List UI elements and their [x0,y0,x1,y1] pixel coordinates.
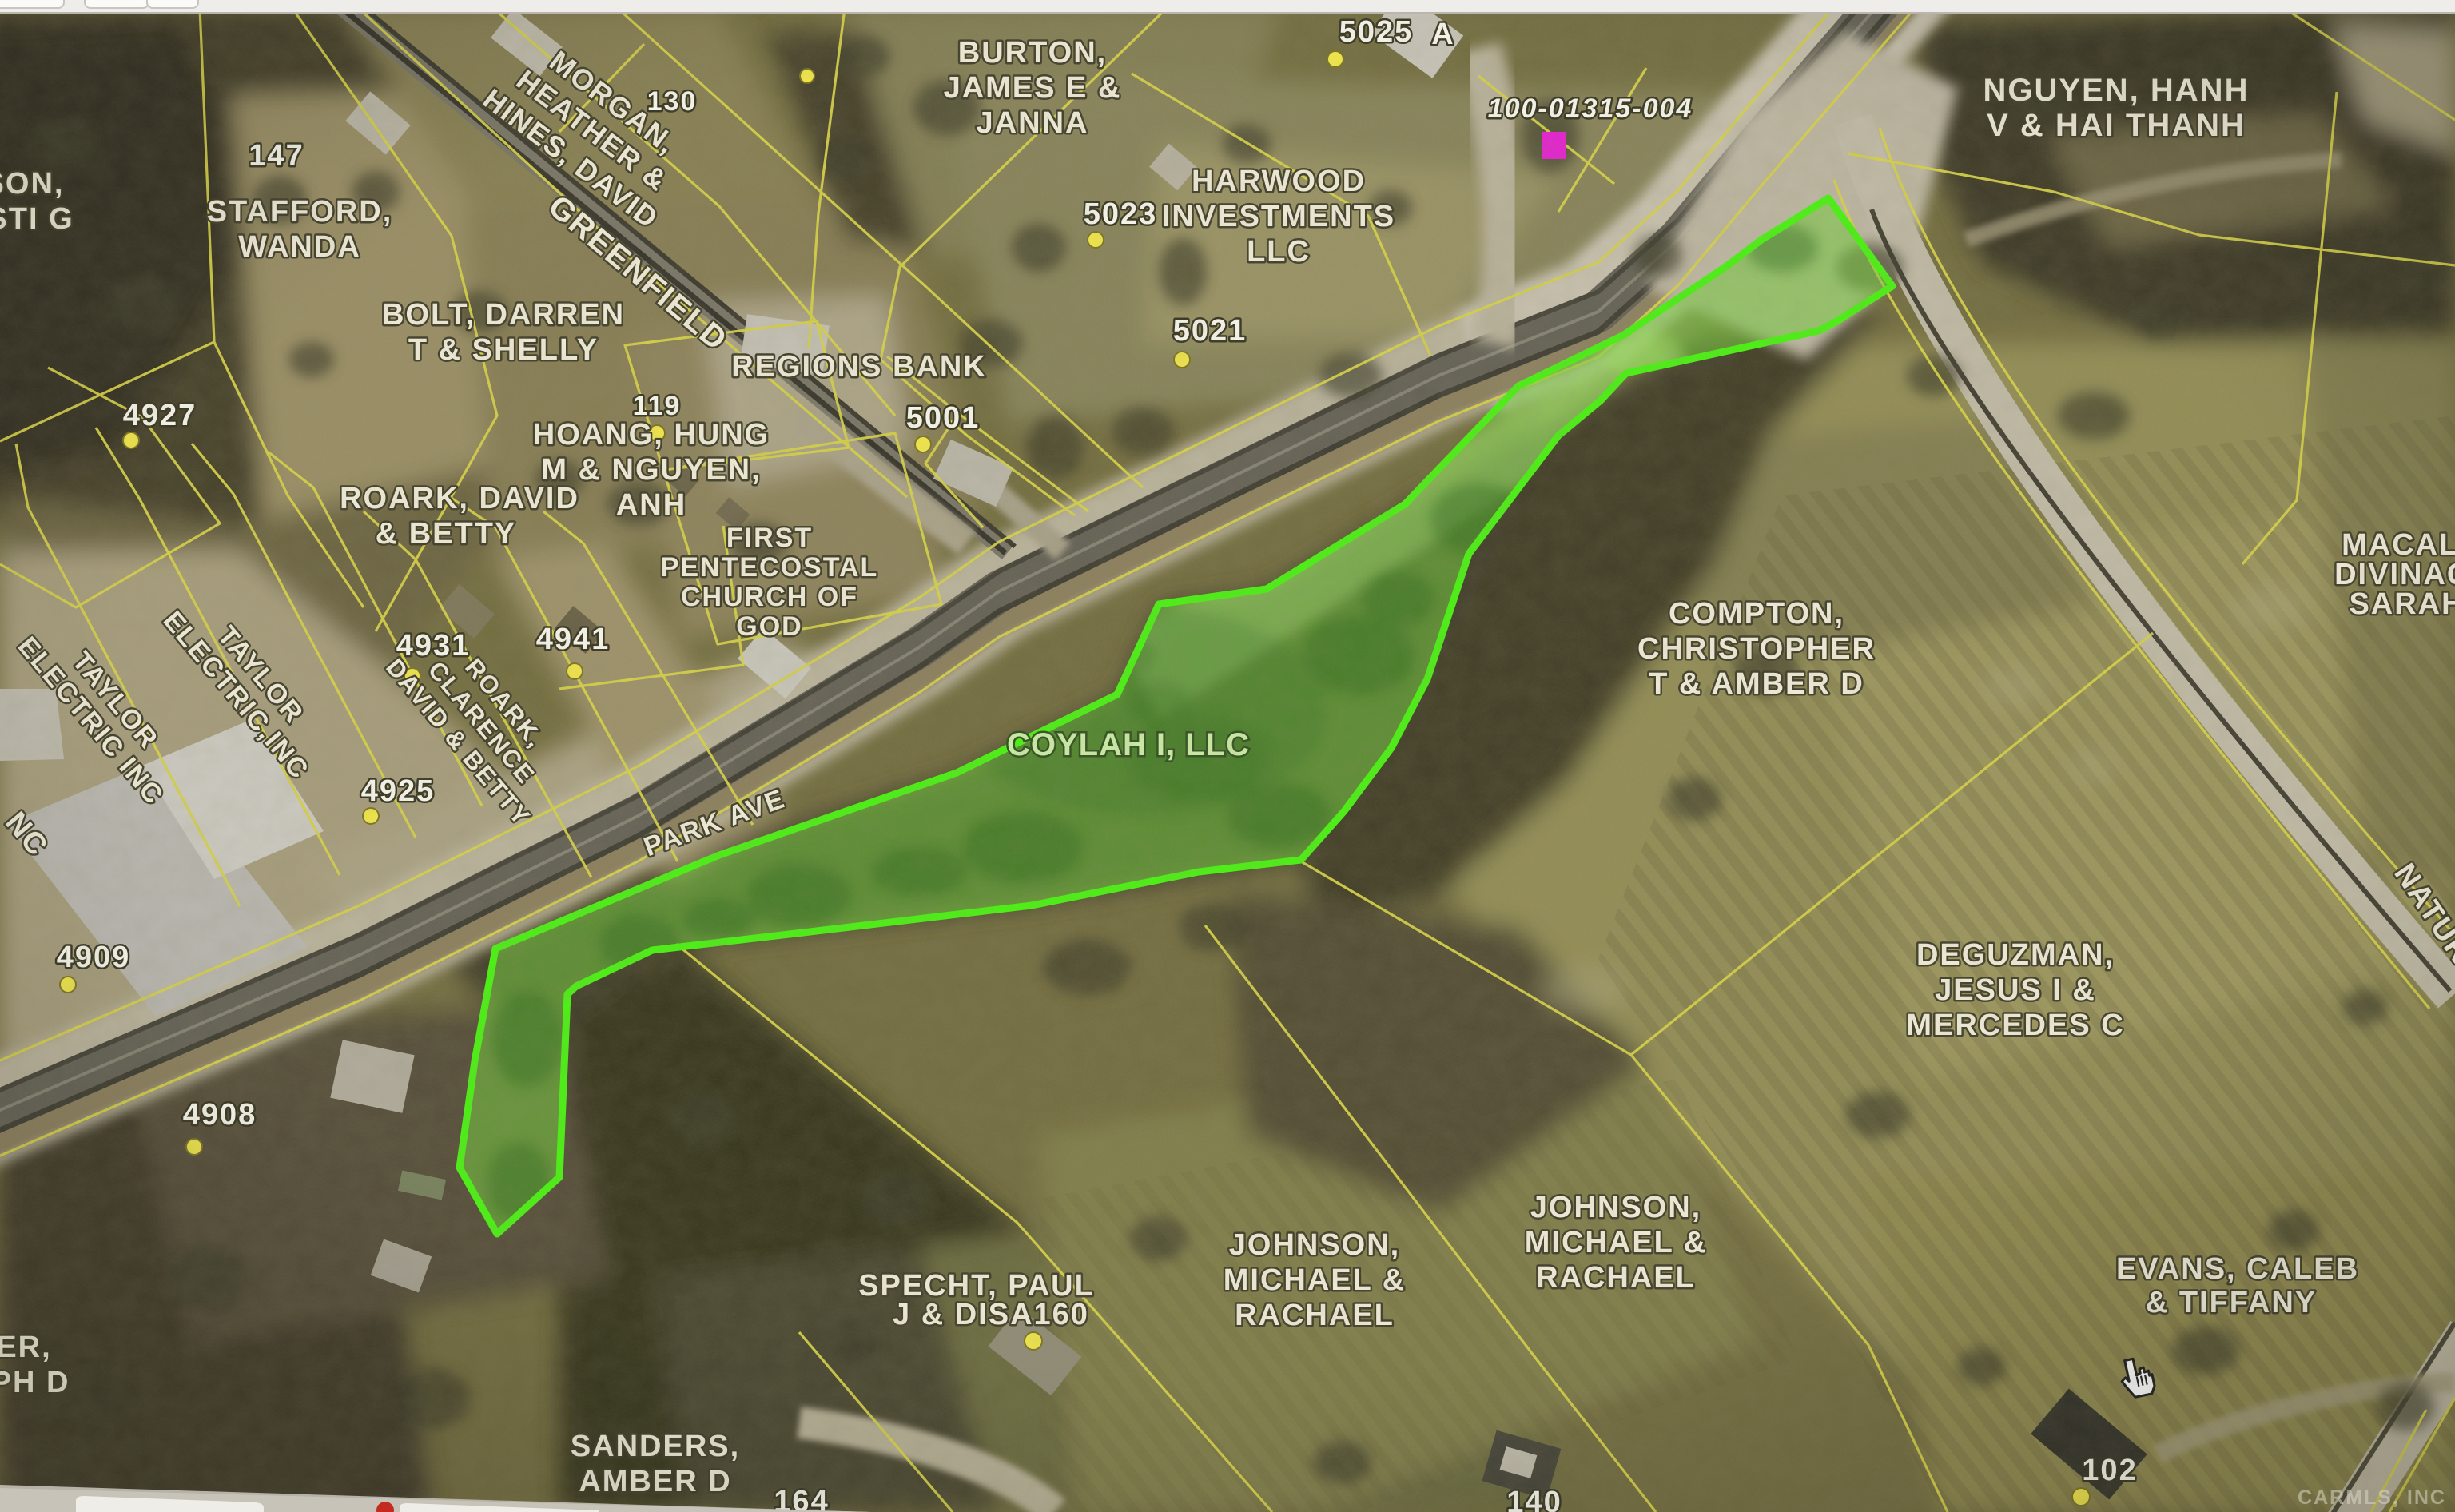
svg-text:CARMLS, INC: CARMLS, INC [2298,1486,2446,1509]
